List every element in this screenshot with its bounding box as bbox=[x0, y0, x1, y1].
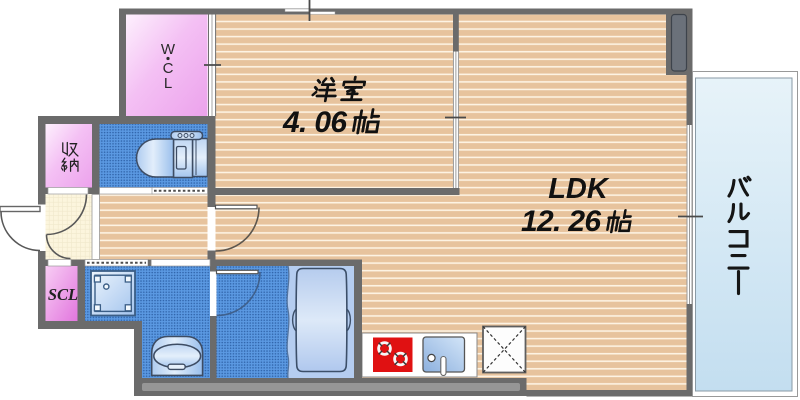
svg-text:SCL: SCL bbox=[48, 285, 78, 304]
svg-text:W: W bbox=[161, 41, 176, 58]
svg-text:4. 06: 4. 06 bbox=[282, 106, 347, 139]
svg-text:L: L bbox=[164, 75, 172, 92]
svg-text:12. 26: 12. 26 bbox=[521, 205, 601, 238]
svg-text:LDK: LDK bbox=[548, 173, 610, 205]
